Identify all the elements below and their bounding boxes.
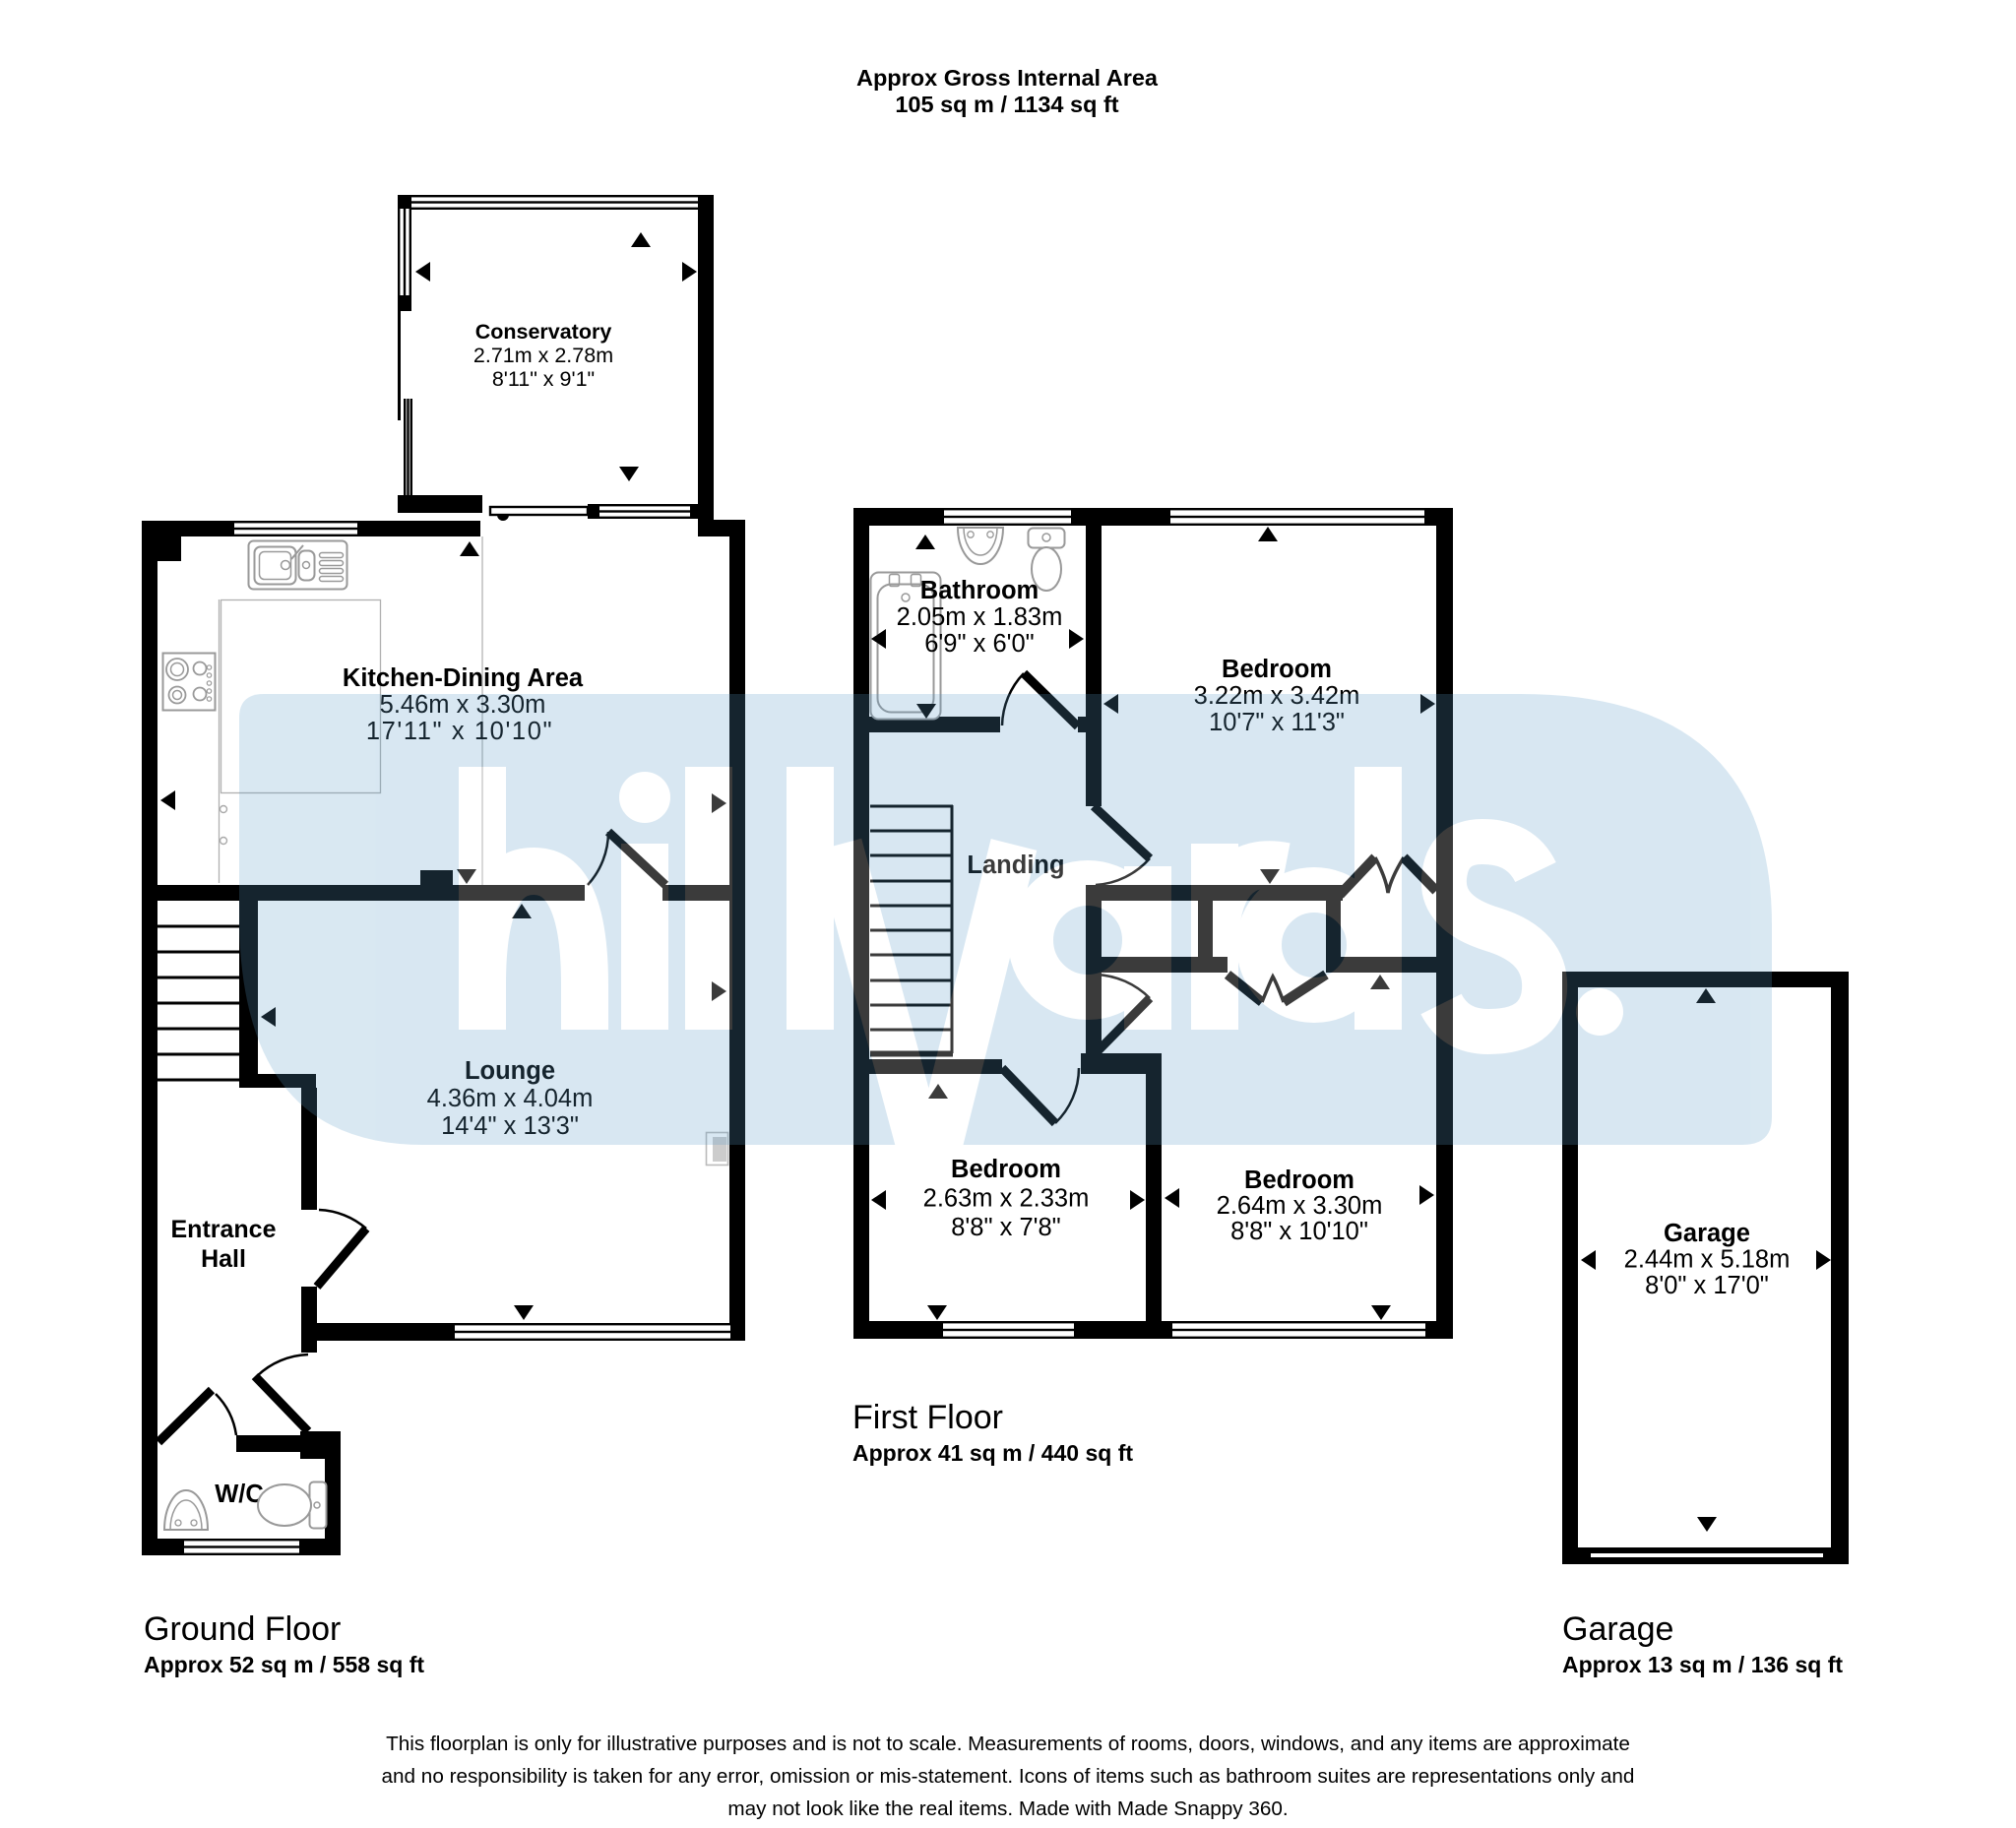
svg-text:Conservatory: Conservatory <box>475 320 612 344</box>
svg-text:8'0" x 17'0": 8'0" x 17'0" <box>1645 1272 1769 1299</box>
svg-text:may not look like the real ite: may not look like the real items. Made w… <box>727 1797 1288 1820</box>
svg-text:W/C: W/C <box>215 1481 264 1508</box>
svg-text:105 sq m / 1134 sq ft: 105 sq m / 1134 sq ft <box>895 92 1118 117</box>
svg-text:Bedroom: Bedroom <box>1222 656 1332 683</box>
svg-text:Garage: Garage <box>1664 1220 1750 1247</box>
svg-text:Bedroom: Bedroom <box>1244 1166 1354 1194</box>
svg-text:Approx 13 sq m / 136 sq ft: Approx 13 sq m / 136 sq ft <box>1562 1652 1843 1677</box>
svg-text:and no responsibility is taken: and no responsibility is taken for any e… <box>382 1765 1635 1788</box>
svg-text:2.63m x 2.33m: 2.63m x 2.33m <box>923 1185 1090 1213</box>
svg-text:Hall: Hall <box>201 1245 246 1273</box>
svg-text:2.71m x 2.78m: 2.71m x 2.78m <box>473 344 613 367</box>
svg-text:Approx 52 sq m / 558 sq ft: Approx 52 sq m / 558 sq ft <box>144 1652 424 1677</box>
svg-text:8'11" x 9'1": 8'11" x 9'1" <box>492 367 595 391</box>
svg-text:8'8" x 7'8": 8'8" x 7'8" <box>951 1214 1061 1241</box>
svg-text:8'8" x 10'10": 8'8" x 10'10" <box>1230 1218 1368 1245</box>
svg-text:Garage: Garage <box>1562 1610 1673 1648</box>
svg-text:This floorplan is only for ill: This floorplan is only for illustrative … <box>386 1733 1630 1755</box>
svg-text:Bedroom: Bedroom <box>951 1156 1061 1183</box>
svg-text:2.44m x 5.18m: 2.44m x 5.18m <box>1624 1246 1791 1274</box>
svg-text:Approx 41 sq m / 440 sq ft: Approx 41 sq m / 440 sq ft <box>852 1440 1133 1466</box>
svg-text:Approx Gross Internal Area: Approx Gross Internal Area <box>856 65 1159 91</box>
svg-text:Bathroom: Bathroom <box>920 577 1039 604</box>
svg-text:Entrance: Entrance <box>171 1216 277 1243</box>
svg-text:2.05m x 1.83m: 2.05m x 1.83m <box>897 603 1063 631</box>
svg-text:First Floor: First Floor <box>852 1399 1003 1436</box>
svg-text:Ground Floor: Ground Floor <box>144 1610 341 1648</box>
svg-text:2.64m x 3.30m: 2.64m x 3.30m <box>1217 1192 1383 1220</box>
svg-text:6'9" x 6'0": 6'9" x 6'0" <box>924 630 1035 658</box>
svg-text:Kitchen-Dining Area: Kitchen-Dining Area <box>343 664 584 692</box>
